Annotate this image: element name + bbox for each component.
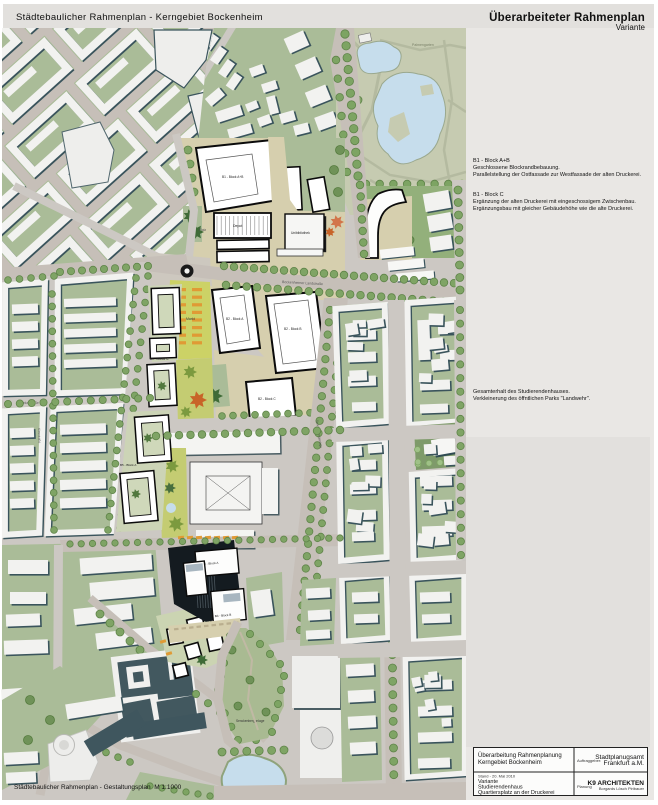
svg-text:Palmengarten: Palmengarten xyxy=(412,43,434,47)
svg-text:B1 - Block A+B: B1 - Block A+B xyxy=(473,158,510,164)
svg-text:Depot: Depot xyxy=(233,224,242,228)
svg-text:B1 - Block A+B: B1 - Block A+B xyxy=(222,175,243,179)
svg-text:B2 - Block C: B2 - Block C xyxy=(258,397,276,401)
svg-text:Geschlossene Blockrandbebauung: Geschlossene Blockrandbebauung. xyxy=(473,165,560,171)
svg-text:Ergänzungsbau mit gleicher Geb: Ergänzungsbau mit gleicher Gebäudehöhe w… xyxy=(473,206,634,212)
svg-text:Stand - 20. Mai 2010: Stand - 20. Mai 2010 xyxy=(478,774,516,779)
svg-text:Frankfurt a.M.: Frankfurt a.M. xyxy=(604,760,645,767)
svg-text:Variante: Variante xyxy=(616,23,646,32)
svg-text:Borgards Lösch Piribauer: Borgards Lösch Piribauer xyxy=(599,786,645,791)
svg-text:Kerngebiet Bockenheim: Kerngebiet Bockenheim xyxy=(478,760,542,766)
svg-text:Platz: Platz xyxy=(199,228,206,232)
svg-text:B2 - Block A: B2 - Block A xyxy=(226,317,244,321)
svg-text:B1 - Block C: B1 - Block C xyxy=(473,192,504,198)
svg-text:Quartiersplatz an der Druckere: Quartiersplatz an der Druckerei xyxy=(478,790,554,796)
svg-text:Städtebaulicher Rahmenplan - G: Städtebaulicher Rahmenplan - Gestaltungs… xyxy=(14,784,182,791)
svg-text:Gesamterhalt des Studierendenh: Gesamterhalt des Studierendenhauses. xyxy=(473,389,570,395)
svg-text:Markt: Markt xyxy=(186,317,195,321)
svg-text:Parallelstellung der Ostfassad: Parallelstellung der Ostfassade zur West… xyxy=(473,172,642,178)
svg-text:B5 - Blöcke G: B5 - Blöcke G xyxy=(150,357,169,361)
svg-text:B2 - Block B: B2 - Block B xyxy=(284,327,302,331)
svg-text:Verkleinerung des öffntlichen: Verkleinerung des öffntlichen Parks "Lan… xyxy=(473,396,591,402)
svg-text:Städtebaulicher Rahmenplan - K: Städtebaulicher Rahmenplan - Kerngebiet … xyxy=(16,12,263,23)
svg-text:Kiesstraße: Kiesstraße xyxy=(37,428,42,444)
svg-text:Überarbeitung Rahmenplanung: Überarbeitung Rahmenplanung xyxy=(478,752,562,759)
svg-text:Senckenberganlage: Senckenberganlage xyxy=(236,719,265,723)
svg-text:Ergänzung der alten Druckerei: Ergänzung der alten Druckerei mit einges… xyxy=(473,199,636,205)
svg-text:B5 - Blöck A: B5 - Blöck A xyxy=(120,463,136,467)
svg-text:Unibibliothek: Unibibliothek xyxy=(291,231,310,235)
